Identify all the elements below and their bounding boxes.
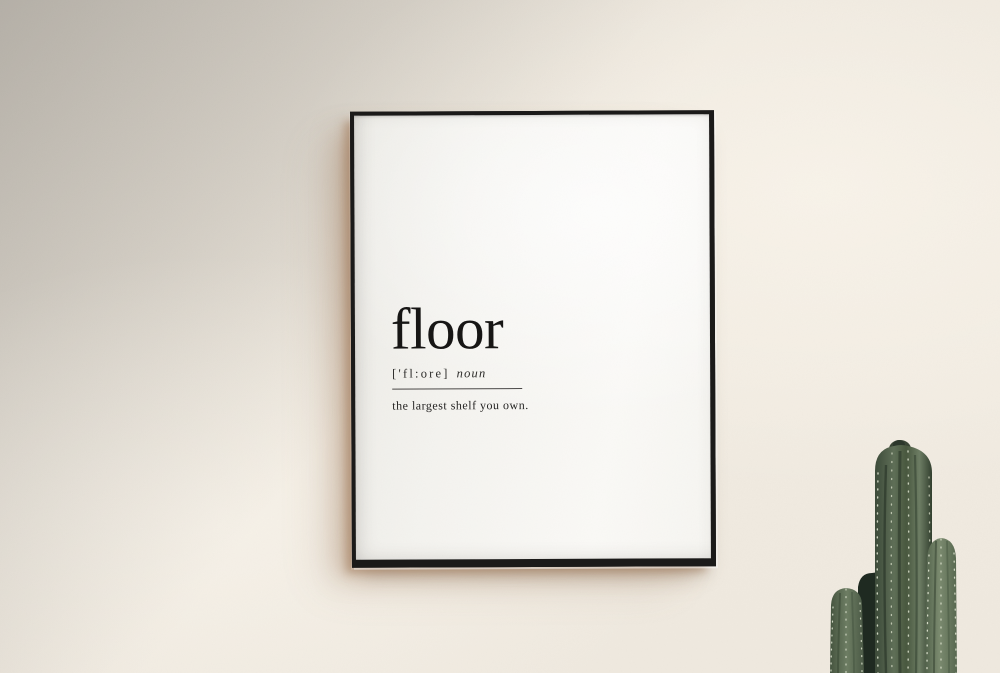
framed-poster: floor ['fl:ore]noun the largest shelf yo… bbox=[350, 110, 716, 568]
poster-phonetic: ['fl:ore] bbox=[392, 366, 450, 380]
cactus-stem-right bbox=[925, 538, 957, 673]
poster-word: floor bbox=[391, 299, 503, 358]
poster-definition: the largest shelf you own. bbox=[392, 398, 528, 414]
cactus-stem-left bbox=[830, 588, 864, 673]
wall-scene: floor ['fl:ore]noun the largest shelf yo… bbox=[0, 0, 1000, 673]
poster-part-of-speech: noun bbox=[457, 366, 487, 380]
cactus-stem-main bbox=[875, 440, 932, 673]
poster-paper: floor ['fl:ore]noun the largest shelf yo… bbox=[354, 114, 711, 560]
divider-line bbox=[392, 388, 522, 390]
cactus-plant bbox=[828, 437, 958, 673]
poster-pronunciation: ['fl:ore]noun bbox=[392, 366, 486, 381]
